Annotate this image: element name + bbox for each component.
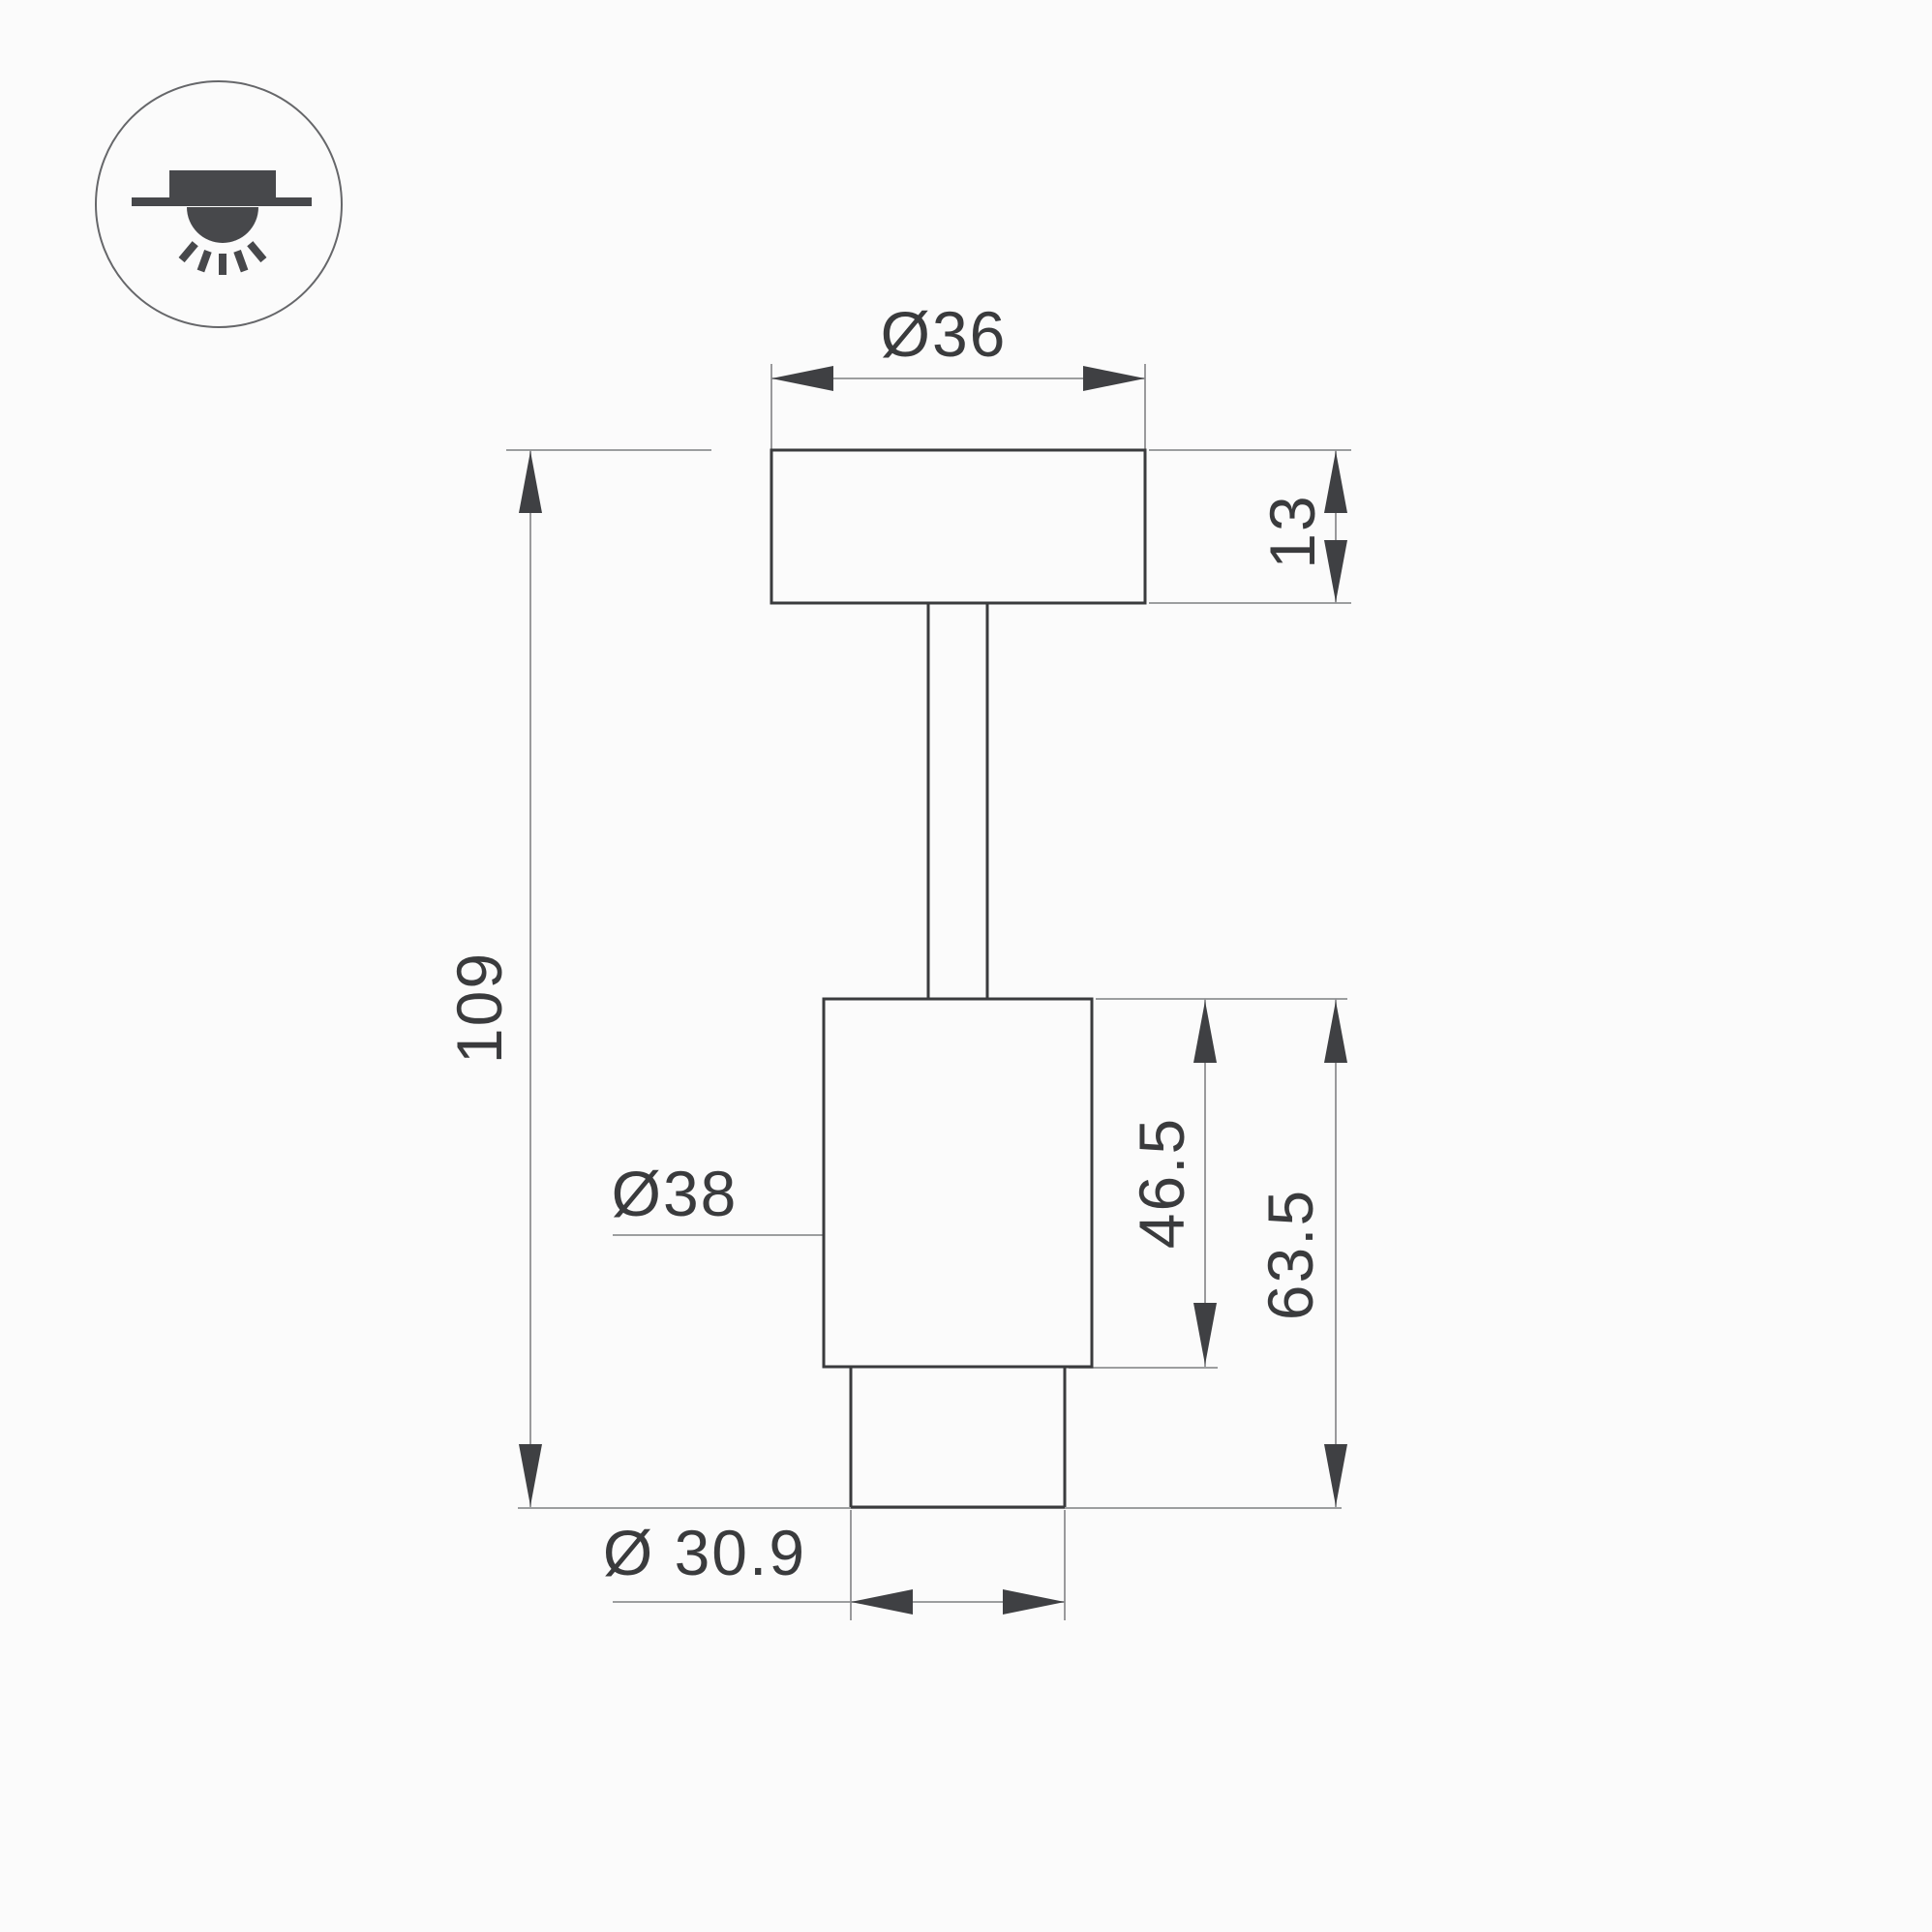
label-overall-height: 109 [443,951,515,1064]
arrow-down-icon [519,1444,542,1506]
dimension-drawing: Ø36 13 109 Ø38 46.5 63.5 Ø 30.9 [0,0,1932,1932]
mounting-plate [771,450,1145,603]
arrow-down-icon [1324,1444,1347,1506]
icon-ceiling-line [132,197,312,206]
lamp-body [824,999,1092,1367]
surface-mounted-ceiling-light-icon [96,81,342,327]
arrow-up-icon [519,451,542,513]
drawing-canvas: Ø36 13 109 Ø38 46.5 63.5 Ø 30.9 [0,0,1932,1932]
arrow-left-icon [771,366,833,391]
icon-fixture-box [169,170,276,199]
arrow-right-icon [1003,1589,1065,1615]
label-body-height: 46.5 [1126,1117,1197,1249]
fixture-outline [771,450,1145,1507]
arrow-right-icon [1083,366,1145,391]
label-plate-thickness: 13 [1256,494,1328,568]
label-top-diameter: Ø36 [881,298,1008,370]
label-bottom-diameter: Ø 30.9 [603,1517,806,1588]
label-body-diameter: Ø38 [612,1158,739,1229]
arrow-up-icon [1193,1001,1217,1063]
label-lower-section-height: 63.5 [1254,1189,1326,1320]
arrow-up-icon [1324,1001,1347,1063]
arrow-left-icon [851,1589,913,1615]
arrow-down-icon [1193,1303,1217,1365]
